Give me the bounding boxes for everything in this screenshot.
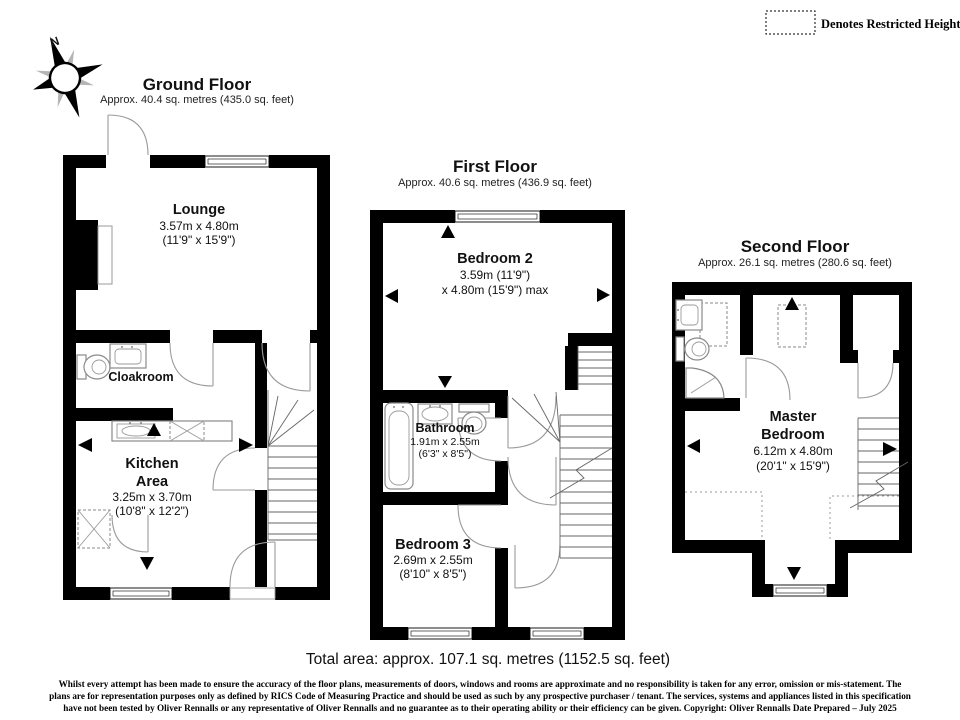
stairs [268, 390, 317, 540]
second-floor-windows [773, 585, 827, 596]
shower-icon [686, 368, 724, 398]
door-swing [230, 542, 275, 599]
first-floor-area: Approx. 40.6 sq. metres (436.9 sq. feet) [398, 177, 592, 189]
measure-arrow-up-icon [441, 225, 455, 238]
floorplan-canvas: N Denotes Restricted Height Ground Floor… [0, 0, 960, 720]
compass-rose-icon: N [10, 22, 119, 132]
door-swing [262, 343, 310, 391]
door-swing [112, 515, 148, 552]
door-swing [746, 358, 790, 400]
disclaimer-line-2: plans are for representation purposes on… [49, 691, 911, 701]
restricted-height-line [830, 496, 899, 540]
master-label-2: Bedroom [761, 427, 825, 443]
legend-label: Denotes Restricted Height [821, 17, 960, 31]
total-area-label: Total area: approx. 107.1 sq. metres (11… [306, 651, 670, 668]
measure-arrow-left-icon [687, 439, 700, 453]
cloakroom-label: Cloakroom [108, 370, 173, 384]
lounge-dims-m: 3.57m x 4.80m [159, 219, 238, 233]
first-floor-title: First Floor [453, 157, 537, 176]
door-swing [170, 343, 213, 386]
measure-arrow-down-icon [438, 376, 452, 388]
bathroom-dims-m: 1.91m x 2.55m [410, 436, 480, 448]
bathroom-dims-ft: (6'3" x 8'5") [419, 448, 472, 460]
bedroom2-dims-2: x 4.80m (15'9") max [442, 283, 549, 297]
measure-arrow-left-icon [78, 438, 92, 452]
floorplan-page: N Denotes Restricted Height Ground Floor… [0, 0, 960, 720]
door-swing [213, 448, 255, 490]
window [455, 211, 540, 222]
door-swing [515, 545, 560, 588]
master-dims-ft: (20'1" x 15'9") [756, 459, 830, 473]
restricted-height-box-icon [778, 305, 806, 347]
door-swing [858, 363, 893, 398]
toilet-icon [77, 355, 110, 379]
kitchen-dims-m: 3.25m x 3.70m [112, 490, 191, 504]
compass-north-label: N [48, 34, 61, 50]
master-dims-m: 6.12m x 4.80m [753, 444, 832, 458]
second-floor-doors [746, 358, 893, 400]
stairs [512, 346, 612, 558]
bedroom2-label: Bedroom 2 [457, 251, 533, 267]
kitchen-label-2: Area [136, 474, 169, 490]
disclaimer-line-3: have not been tested by Oliver Rennalls … [63, 703, 897, 713]
restricted-height-box-icon [766, 11, 815, 34]
master-label-1: Master [770, 409, 817, 425]
restricted-height-line [685, 492, 762, 540]
measure-arrow-right-icon [597, 288, 610, 302]
measure-arrow-up-icon [785, 297, 799, 310]
window [205, 156, 269, 167]
window [110, 588, 172, 599]
door-swing [508, 457, 556, 505]
kitchen-label-1: Kitchen [125, 456, 178, 472]
bedroom3-dims-m: 2.69m x 2.55m [393, 553, 472, 567]
bedroom3-label: Bedroom 3 [395, 537, 471, 553]
disclaimer: Whilst every attempt has been made to en… [49, 679, 911, 713]
ground-floor-title: Ground Floor [143, 75, 252, 94]
bedroom3-dims-ft: (8'10" x 8'5") [399, 567, 466, 581]
window [530, 628, 584, 639]
bath-icon [385, 403, 413, 489]
ground-floor-area: Approx. 40.4 sq. metres (435.0 sq. feet) [100, 94, 294, 106]
stair-break-line [550, 448, 612, 498]
measure-arrow-left-icon [385, 289, 398, 303]
kitchen-dims-ft: (10'8" x 12'2") [115, 504, 189, 518]
lounge-dims-ft: (11'9" x 15'9") [163, 233, 236, 247]
second-floor-plan: Second Floor Approx. 26.1 sq. metres (28… [672, 237, 912, 597]
second-floor-title: Second Floor [741, 237, 850, 256]
second-floor-area: Approx. 26.1 sq. metres (280.6 sq. feet) [698, 257, 892, 269]
sink-icon [676, 300, 702, 330]
measure-arrow-down-icon [787, 567, 801, 580]
sink-icon [110, 344, 146, 368]
first-floor-plan: First Floor Approx. 40.6 sq. metres (436… [370, 157, 625, 640]
window [773, 585, 827, 596]
measure-arrow-right-icon [239, 438, 253, 452]
measure-arrow-right-icon [883, 442, 897, 456]
legend: Denotes Restricted Height [766, 11, 960, 34]
appliance-space-icon [78, 510, 110, 548]
bedroom2-dims-1: 3.59m (11'9") [460, 268, 530, 282]
disclaimer-line-1: Whilst every attempt has been made to en… [59, 679, 902, 689]
bathroom-label: Bathroom [415, 421, 474, 435]
lounge-label: Lounge [173, 202, 225, 218]
ground-floor-plan: Ground Floor Approx. 40.4 sq. metres (43… [63, 75, 330, 600]
measure-arrow-down-icon [140, 557, 154, 570]
toilet-icon [676, 337, 709, 361]
window [408, 628, 472, 639]
door-swing [108, 115, 148, 155]
